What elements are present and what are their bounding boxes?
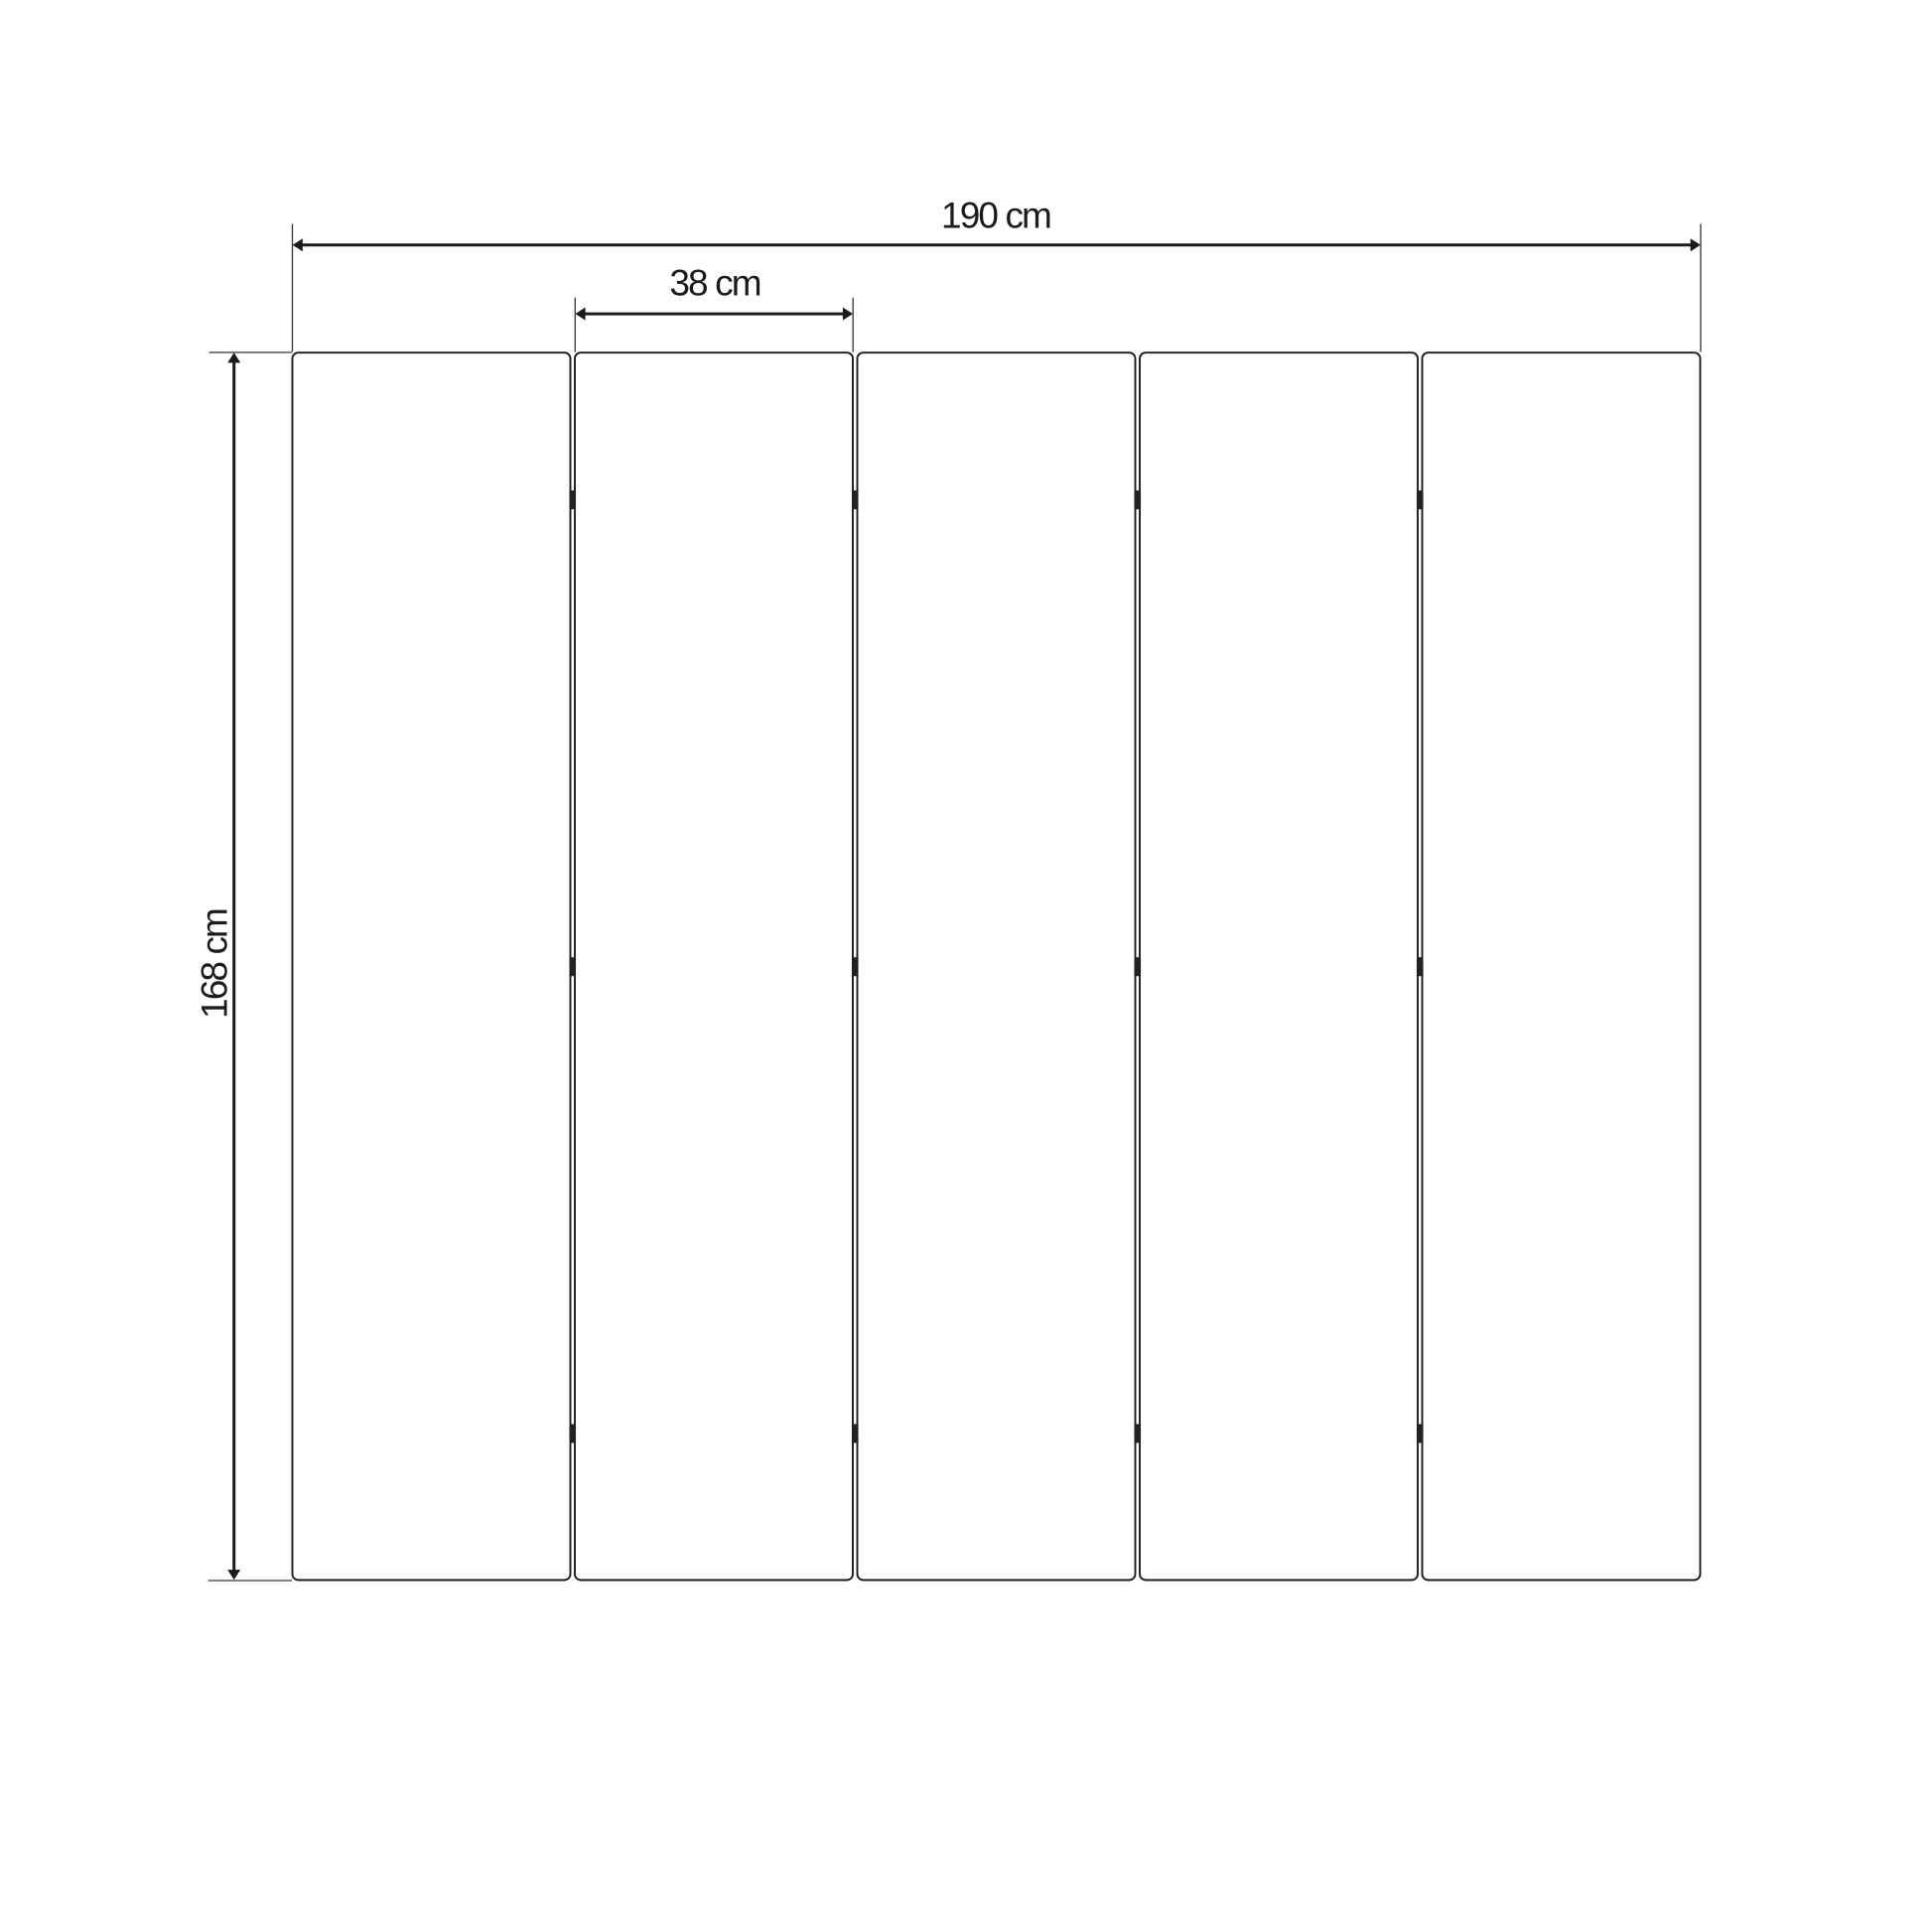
- svg-text:38 cm: 38 cm: [669, 263, 759, 304]
- svg-text:190 cm: 190 cm: [941, 196, 1050, 236]
- svg-text:168 cm: 168 cm: [195, 909, 235, 1019]
